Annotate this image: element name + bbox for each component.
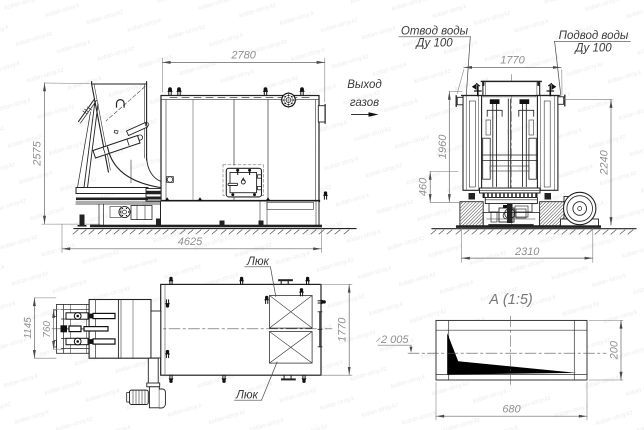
svg-text:Выход: Выход [347, 79, 382, 91]
svg-text:1770: 1770 [337, 317, 349, 342]
svg-text:200: 200 [609, 340, 621, 360]
svg-text:460: 460 [418, 177, 430, 196]
svg-text:2780: 2780 [230, 50, 256, 62]
svg-text:А (1:5): А (1:5) [488, 292, 533, 308]
svg-text:2575: 2575 [32, 140, 44, 166]
svg-text:1770: 1770 [500, 54, 525, 66]
svg-text:Ду 100: Ду 100 [414, 38, 453, 50]
svg-text:2240: 2240 [599, 149, 611, 175]
svg-text:2310: 2310 [514, 246, 540, 258]
svg-text:2 005: 2 005 [380, 334, 409, 346]
svg-text:Ду 100: Ду 100 [573, 43, 612, 55]
svg-text:680: 680 [502, 404, 521, 416]
svg-text:4625: 4625 [178, 236, 203, 248]
svg-text:1960: 1960 [437, 134, 449, 159]
svg-text:Люк: Люк [246, 256, 270, 268]
svg-text:Люк: Люк [235, 390, 259, 402]
svg-text:Подвод воды: Подвод воды [559, 30, 629, 42]
svg-text:Отвод воды: Отвод воды [401, 26, 469, 38]
svg-text:газов: газов [350, 97, 379, 109]
svg-text:760: 760 [42, 321, 53, 338]
svg-text:1145: 1145 [23, 317, 34, 339]
